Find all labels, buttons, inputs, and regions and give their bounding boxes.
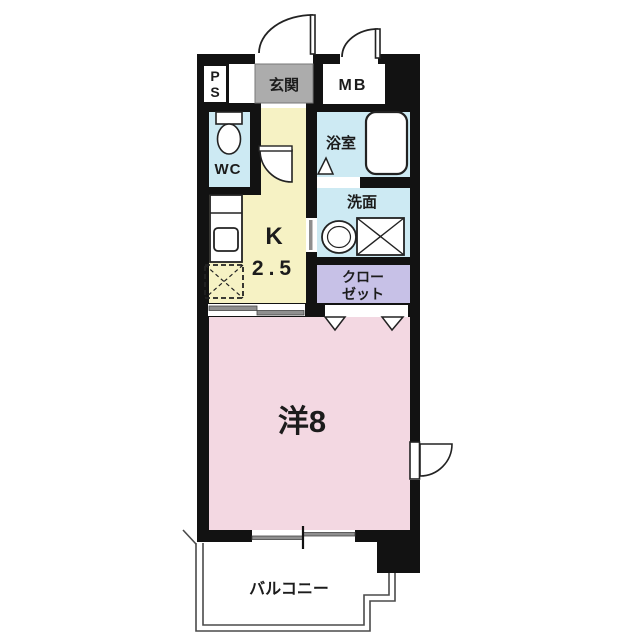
wall-right-upper: [410, 54, 420, 442]
floor-plan-drawing: P S 玄関 MB WC 浴室 洗面 K 2.5 クロー ゼット 洋8 バルコニ…: [0, 0, 640, 640]
wc-door-leaf-icon: [259, 146, 292, 151]
meter-box-label: MB: [339, 77, 368, 94]
floor-plan: P S 玄関 MB WC 浴室 洗面 K 2.5 クロー ゼット 洋8 バルコニ…: [0, 0, 640, 640]
mb-door-leaf-icon: [376, 29, 381, 58]
balcony-label: バルコニー: [249, 580, 329, 598]
ps-label: P: [210, 68, 219, 84]
west-room-door-leaf-icon: [410, 442, 420, 479]
wall-kitchen-right-upper: [306, 103, 317, 218]
kitchen-label: K: [265, 223, 283, 250]
entrance-label: 玄関: [269, 76, 299, 94]
ps-label: S: [210, 84, 219, 100]
wall-bath-bottom: [360, 177, 410, 188]
wall-bottom-left: [197, 530, 252, 542]
wall-bottom-right: [355, 530, 420, 542]
wall-wc-bottom: [197, 187, 250, 195]
washroom-door-slider-icon: [309, 220, 313, 250]
sliding-door-panel-icon: [257, 311, 304, 316]
washroom-label: 洗面: [347, 193, 377, 211]
bathroom-label: 浴室: [326, 134, 356, 152]
closet-opening: [325, 305, 408, 317]
wall-washroom-closet: [317, 257, 410, 265]
entrance-door-leaf-icon: [311, 15, 316, 54]
washing-machine-space-icon: [357, 218, 404, 255]
wall-segment: [313, 54, 340, 64]
kitchen-counter-icon: [210, 195, 242, 262]
washbasin-inner-icon: [328, 227, 351, 248]
toilet-label: WC: [215, 161, 242, 178]
bathtub-icon: [366, 112, 407, 174]
closet-label: ゼット: [342, 286, 384, 302]
balcony-window-panel-icon: [252, 536, 303, 540]
sliding-door-panel-icon: [209, 306, 257, 311]
toilet-bowl-icon: [218, 124, 241, 154]
kitchen-size-label: 2.5: [252, 257, 296, 280]
balcony-window-panel-icon: [303, 533, 355, 537]
toilet-tank-icon: [216, 112, 242, 124]
entrance-hall-floor: [229, 64, 255, 103]
wall-corner-block: [377, 542, 420, 573]
closet-label: クロー: [342, 269, 384, 285]
western-room-label: 洋8: [278, 404, 326, 439]
